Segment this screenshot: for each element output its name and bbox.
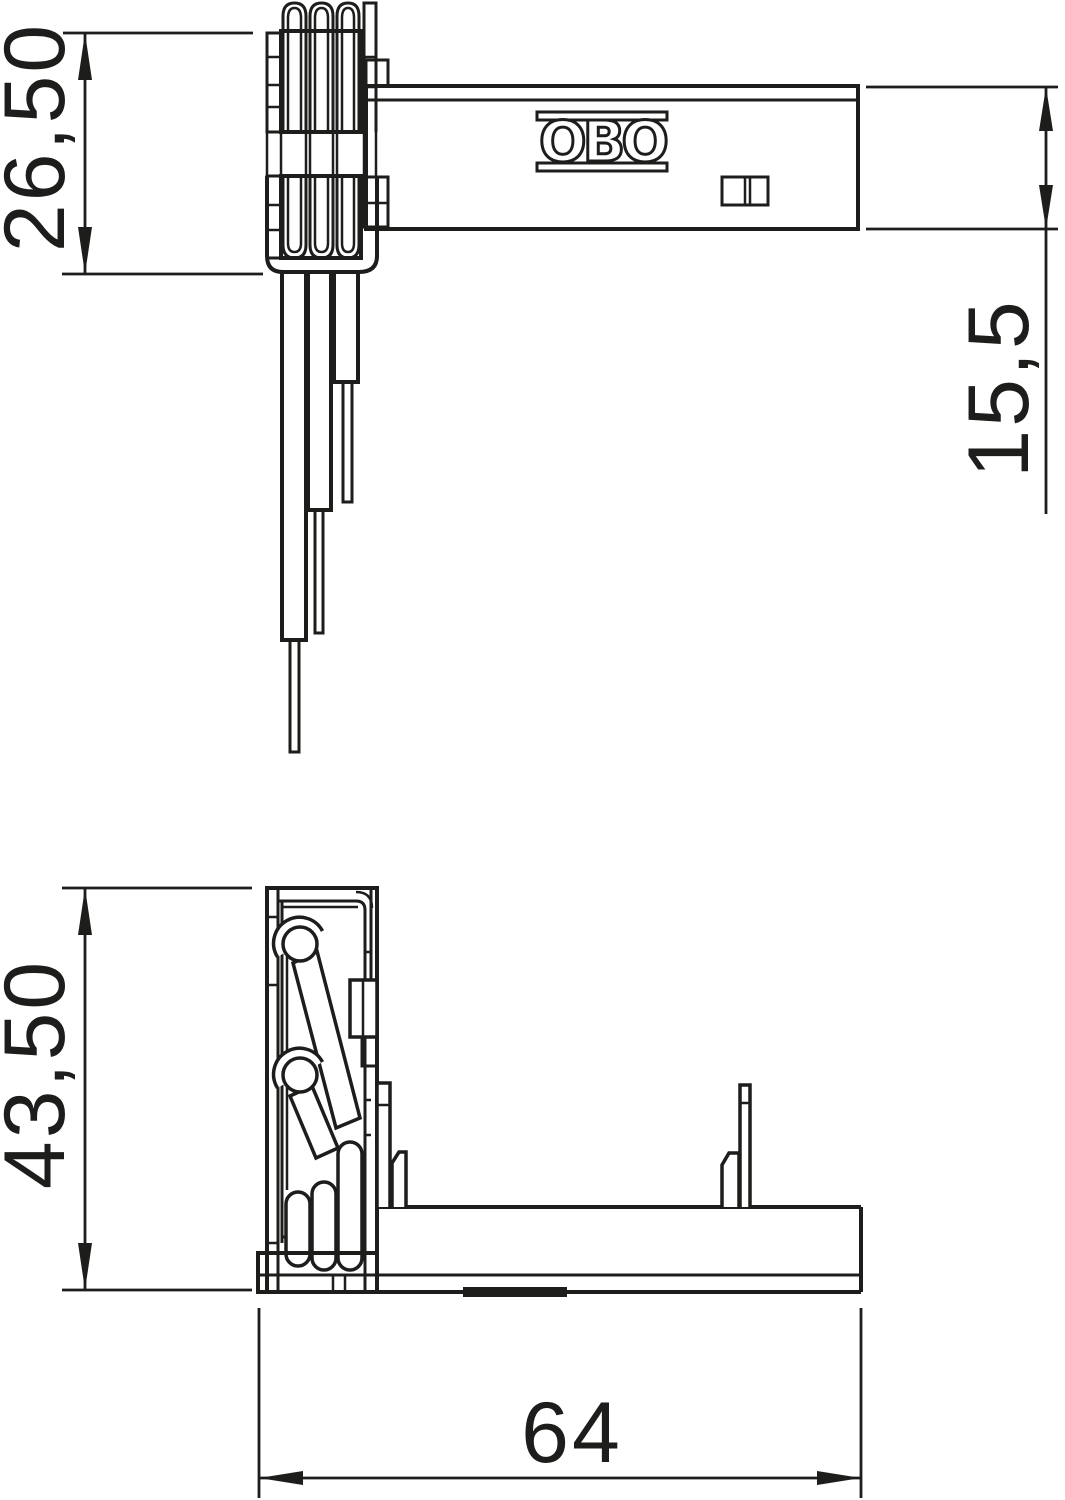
finger-1-outer — [283, 3, 306, 132]
lower-finger-group — [267, 176, 388, 272]
spring-clip-stack — [267, 3, 388, 752]
clip-transition-lines — [267, 132, 376, 176]
spring-sleeve-3 — [338, 1142, 362, 1270]
pin-2 — [315, 510, 323, 633]
contact-strips — [282, 272, 358, 752]
lower-block-outline — [281, 176, 361, 258]
upper-left-ledge — [267, 33, 281, 132]
finger-2-outer — [310, 3, 333, 132]
dimension-label: 26,50 — [0, 22, 83, 252]
finger-3-inner — [342, 8, 354, 132]
dimension-label: 15,5 — [951, 298, 1047, 477]
tab-right-hook — [722, 1153, 739, 1207]
side-view: 43,50 64 — [0, 888, 861, 1498]
foot-1-inner — [288, 176, 301, 252]
foot-3-inner — [342, 176, 354, 252]
retaining-tabs — [377, 1083, 750, 1207]
spring-sleeve-2 — [312, 1182, 336, 1270]
arrowhead-up — [1039, 87, 1053, 131]
inner-frame-top — [278, 901, 365, 910]
pin-3 — [343, 382, 352, 502]
tab-left-pin — [377, 1083, 390, 1207]
strip-1 — [282, 272, 306, 640]
strip-3 — [334, 272, 358, 382]
dimension-arm-width: 15,5 — [866, 87, 1058, 514]
dimension-base-length: 64 — [259, 1308, 861, 1498]
dimension-label: 43,50 — [0, 959, 83, 1189]
finger-3-outer — [337, 3, 359, 132]
base-pad — [463, 1287, 567, 1297]
foot-2-inner — [315, 176, 328, 252]
foot-2-outer — [310, 176, 333, 258]
upper-block-outline — [281, 31, 361, 132]
lower-left-ledge — [267, 176, 281, 258]
top-view: OBO — [0, 3, 1058, 752]
technical-drawing-page: OBO — [0, 0, 1065, 1500]
foot-3-outer — [337, 176, 359, 258]
pin-1 — [290, 640, 299, 752]
finger-2-inner — [315, 8, 328, 132]
dimension-clip-stack-height: 26,50 — [0, 22, 263, 274]
dimension-body-height: 43,50 — [0, 888, 252, 1290]
arrowhead-left — [259, 1471, 303, 1485]
dimension-label: 64 — [521, 1385, 623, 1481]
obo-logo-text: OBO — [539, 110, 666, 175]
foot-1-outer — [283, 176, 306, 258]
strip-2 — [308, 272, 331, 510]
tab-left-hook — [392, 1152, 406, 1207]
pivot-pin-1 — [283, 927, 317, 961]
arrowhead-right — [817, 1471, 861, 1485]
arrowhead-down — [78, 1243, 92, 1290]
arrowhead-down — [1039, 185, 1053, 229]
finger-1-inner — [288, 8, 301, 132]
obo-logo: OBO — [537, 110, 667, 175]
technical-drawing: OBO — [0, 0, 1065, 1500]
arrowhead-up — [78, 888, 92, 935]
arm-latch-detail — [722, 177, 768, 205]
pivot-pin-2 — [283, 1058, 317, 1092]
upper-finger-group — [267, 3, 376, 132]
